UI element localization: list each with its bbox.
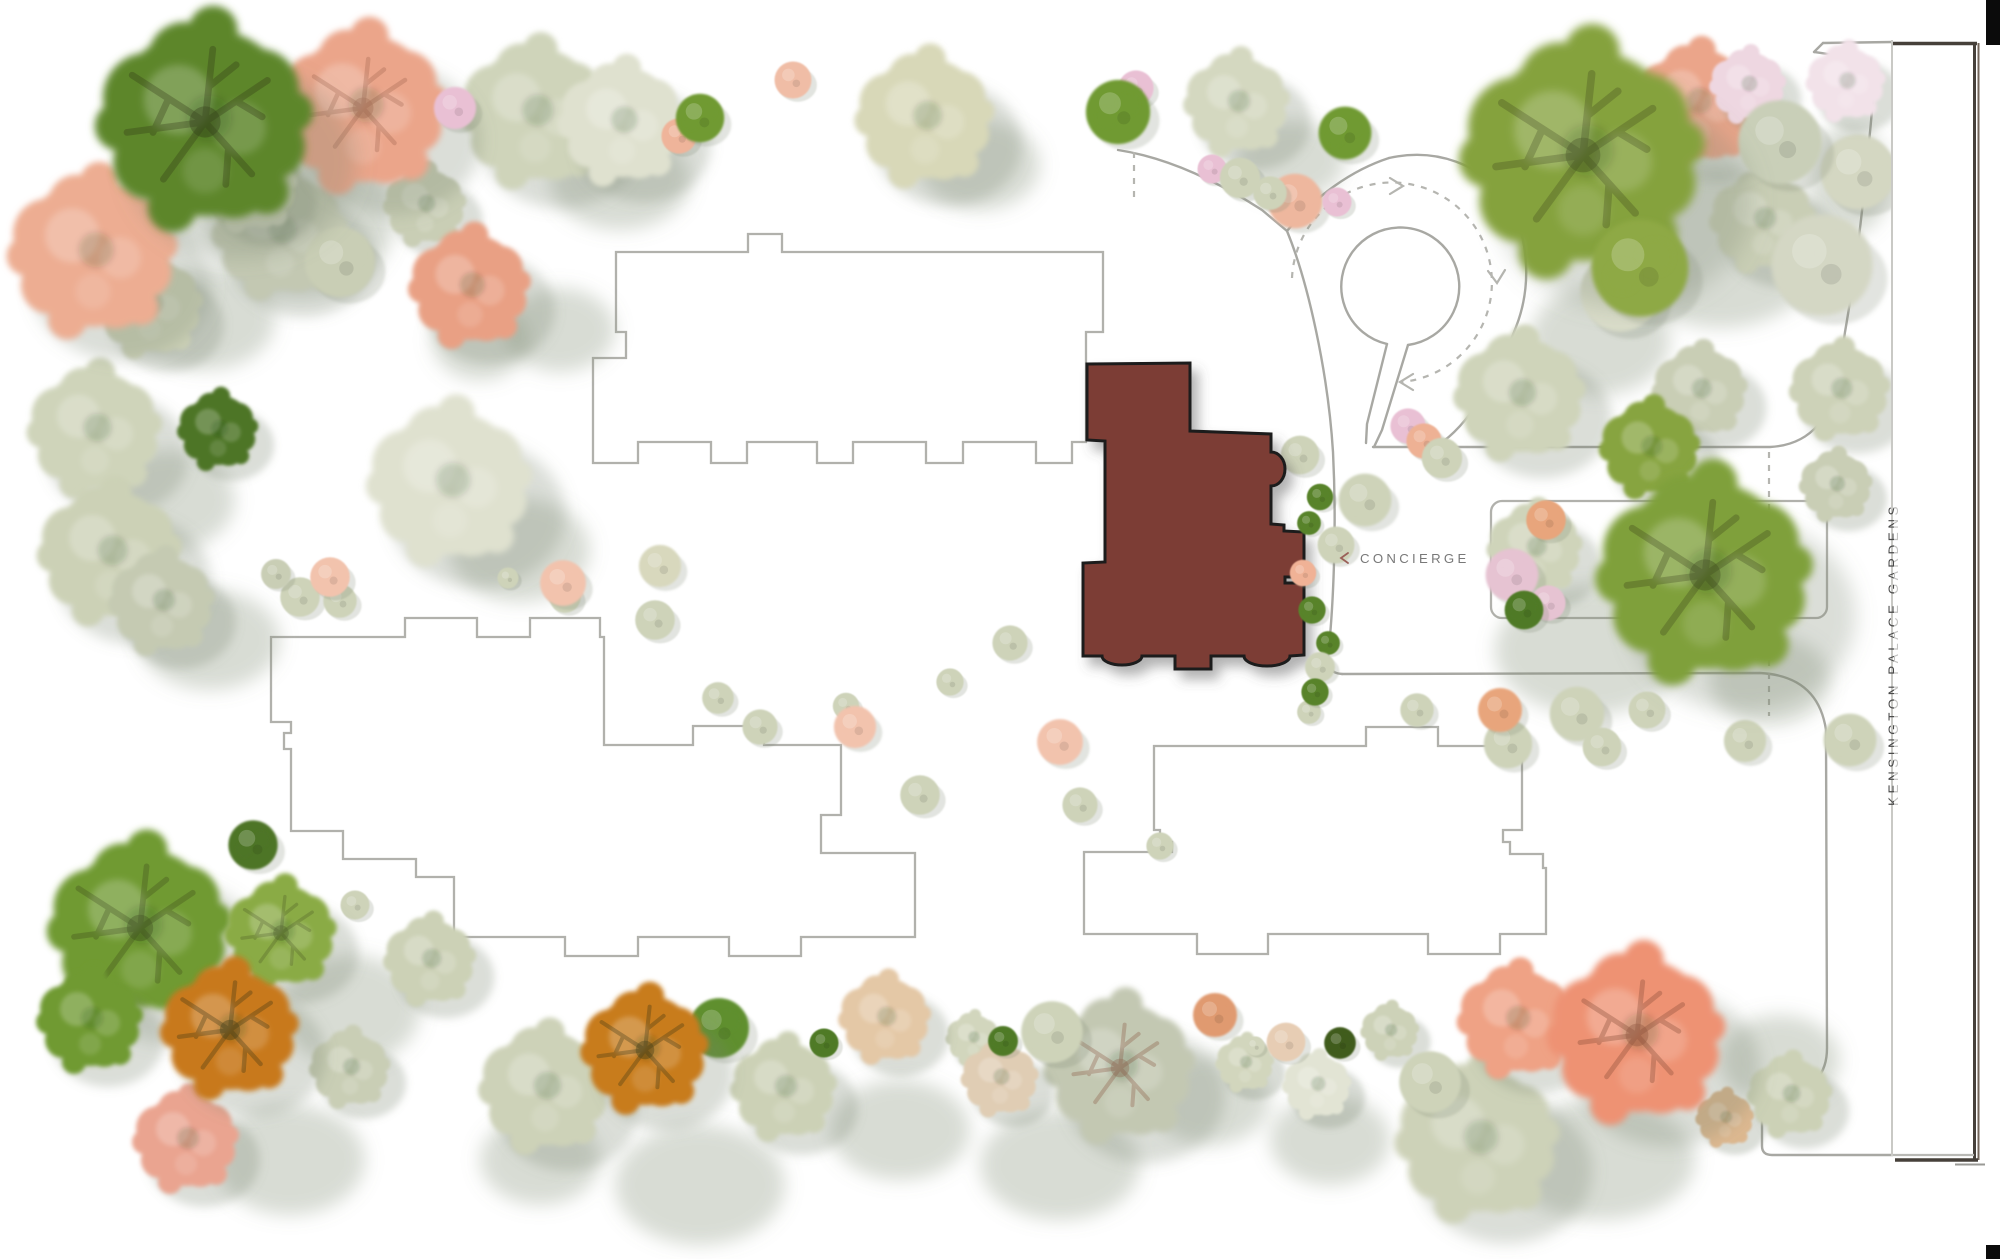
svg-text:CONCIERGE: CONCIERGE: [1360, 551, 1470, 566]
